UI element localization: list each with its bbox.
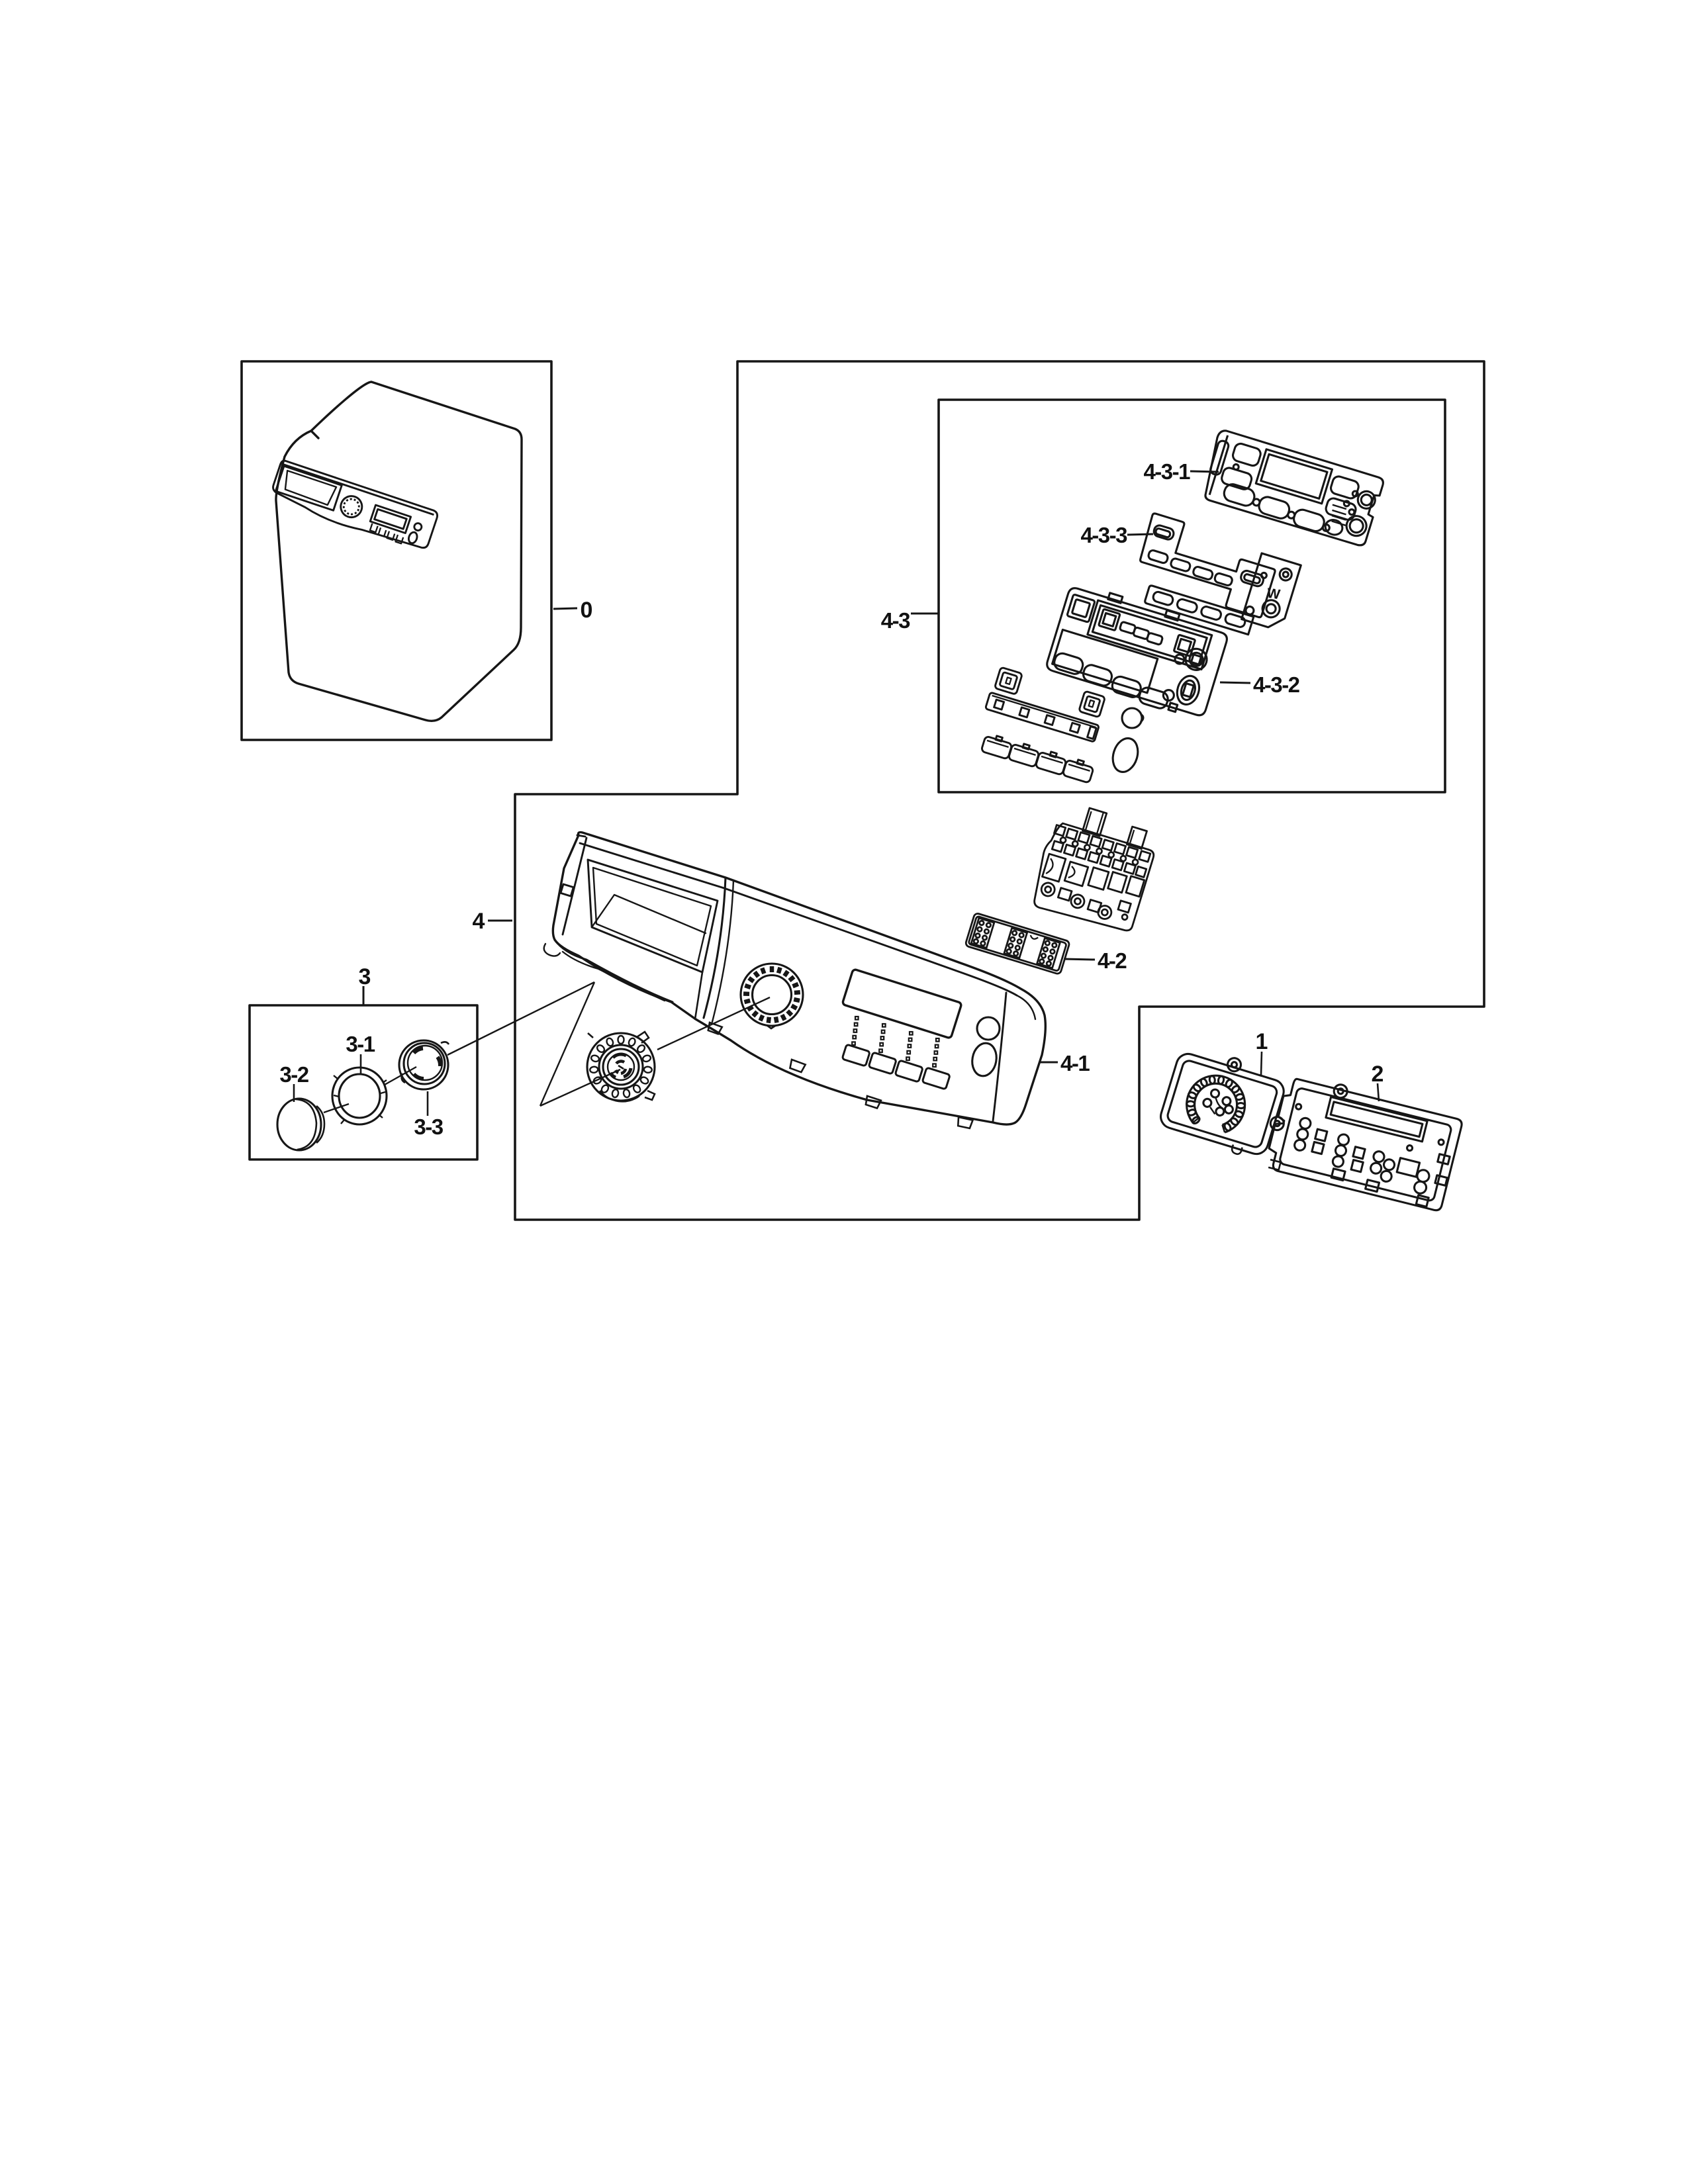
svg-text:4-3-3: 4-3-3 — [1080, 523, 1127, 547]
svg-text:1: 1 — [1256, 1029, 1268, 1054]
svg-text:W: W — [1266, 586, 1281, 603]
svg-text:4-3-1: 4-3-1 — [1143, 459, 1190, 484]
svg-text:4: 4 — [473, 909, 485, 934]
svg-text:3-3: 3-3 — [414, 1115, 443, 1139]
svg-text:4-2: 4-2 — [1098, 948, 1127, 973]
svg-text:0: 0 — [581, 598, 593, 623]
svg-text:2: 2 — [1372, 1062, 1384, 1087]
svg-text:4-3-2: 4-3-2 — [1253, 672, 1300, 697]
svg-text:3-1: 3-1 — [346, 1032, 375, 1056]
svg-text:4-3: 4-3 — [881, 608, 910, 633]
svg-text:3: 3 — [359, 964, 371, 989]
svg-text:4-1: 4-1 — [1060, 1051, 1090, 1075]
svg-text:3-2: 3-2 — [279, 1062, 308, 1087]
